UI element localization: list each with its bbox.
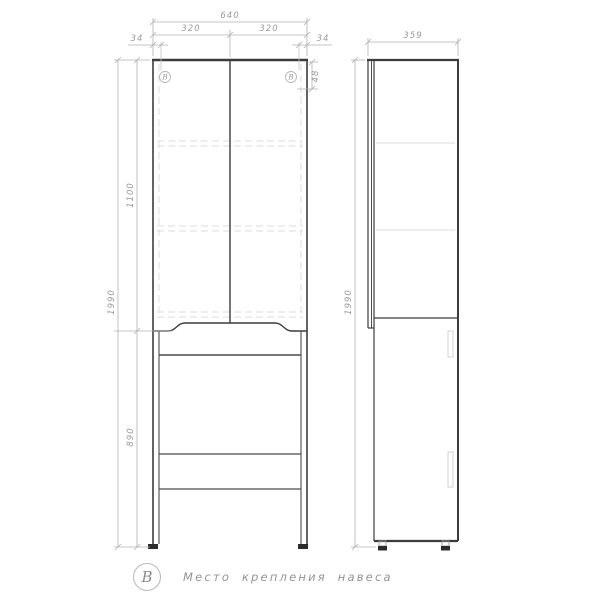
dim-label-320-left: 320 <box>181 24 200 34</box>
technical-drawing: В В <box>0 0 600 600</box>
front-dimensions <box>114 18 332 550</box>
dim-label-1990-side: 1990 <box>344 289 354 315</box>
side-view: 359 1990 <box>344 31 461 551</box>
dim-label-34-right: 34 <box>317 34 330 44</box>
front-view: В В <box>107 11 332 550</box>
legend-caption: Место крепления навеса <box>183 570 393 584</box>
dim-label-48: 48 <box>311 70 321 83</box>
dim-label-320-right: 320 <box>259 24 278 34</box>
front-door-bottom-curve <box>153 323 307 331</box>
drawing-canvas: В В <box>0 0 600 600</box>
front-cabinet-outline <box>152 60 308 544</box>
dim-label-890: 890 <box>126 427 136 446</box>
side-shelf-lines <box>376 143 455 230</box>
dim-label-359: 359 <box>403 31 422 41</box>
dim-label-1100: 1100 <box>126 182 136 208</box>
dim-label-640: 640 <box>220 11 239 21</box>
front-foot-left <box>148 544 158 549</box>
front-lower-frame <box>159 331 301 544</box>
dim-label-1990: 1990 <box>107 289 117 315</box>
front-feet <box>148 544 308 549</box>
groove-lower <box>448 452 453 487</box>
side-cabinet-outline <box>367 60 459 541</box>
side-foot-pad-right <box>441 546 450 551</box>
side-feet <box>378 541 450 551</box>
legend-symbol-letter: В <box>140 568 152 586</box>
side-door-grooves <box>448 331 453 487</box>
side-foot-pad-left <box>378 546 387 551</box>
front-hinge-marks: В В <box>160 42 300 83</box>
hinge-mark-label-left: В <box>161 74 167 82</box>
legend: В Место крепления навеса <box>134 564 393 591</box>
dim-label-34-left: 34 <box>131 34 144 44</box>
front-foot-right <box>298 544 308 549</box>
hinge-mark-label-right: В <box>287 74 293 82</box>
groove-upper <box>448 331 453 357</box>
side-dimension-labels: 359 1990 <box>344 31 423 315</box>
